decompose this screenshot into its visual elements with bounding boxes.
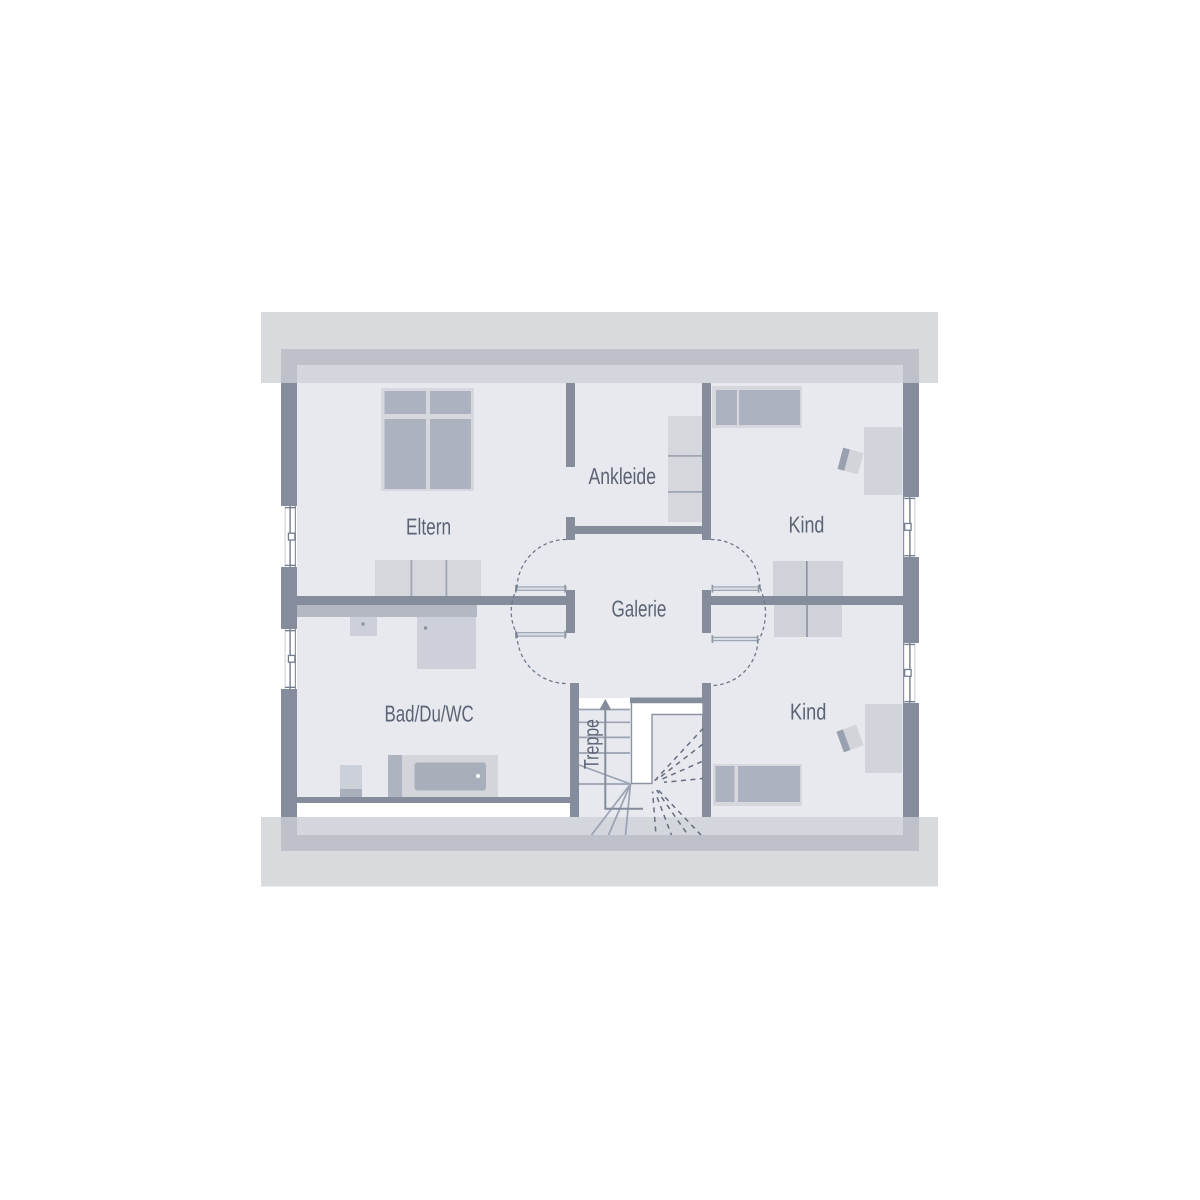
svg-text:Eltern: Eltern xyxy=(406,514,451,540)
svg-text:Treppe: Treppe xyxy=(581,719,604,769)
svg-text:Kind: Kind xyxy=(790,699,826,725)
svg-text:Ankleide: Ankleide xyxy=(589,463,656,489)
svg-text:Bad/Du/WC: Bad/Du/WC xyxy=(385,700,474,726)
svg-text:Kind: Kind xyxy=(789,512,825,538)
svg-text:Galerie: Galerie xyxy=(612,596,667,622)
